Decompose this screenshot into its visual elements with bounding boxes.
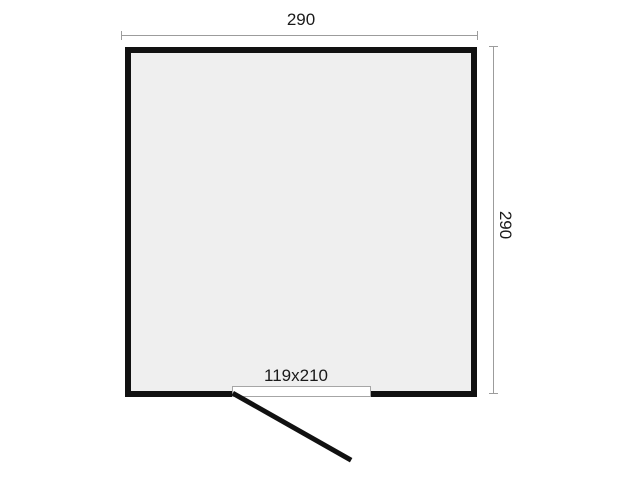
top-dimension-line xyxy=(121,35,478,36)
top-dimension-label: 290 xyxy=(287,10,315,30)
door-swing-line xyxy=(232,391,353,462)
floor-plan: 290 290 119x210 xyxy=(0,0,640,480)
right-dimension-label: 290 xyxy=(495,211,515,239)
door-opening xyxy=(232,386,371,397)
dimension-tick xyxy=(121,31,122,40)
dimension-tick xyxy=(477,31,478,40)
dimension-tick xyxy=(489,393,498,394)
room-outline xyxy=(125,47,477,397)
dimension-tick xyxy=(489,46,498,47)
door-size-label: 119x210 xyxy=(264,366,328,386)
